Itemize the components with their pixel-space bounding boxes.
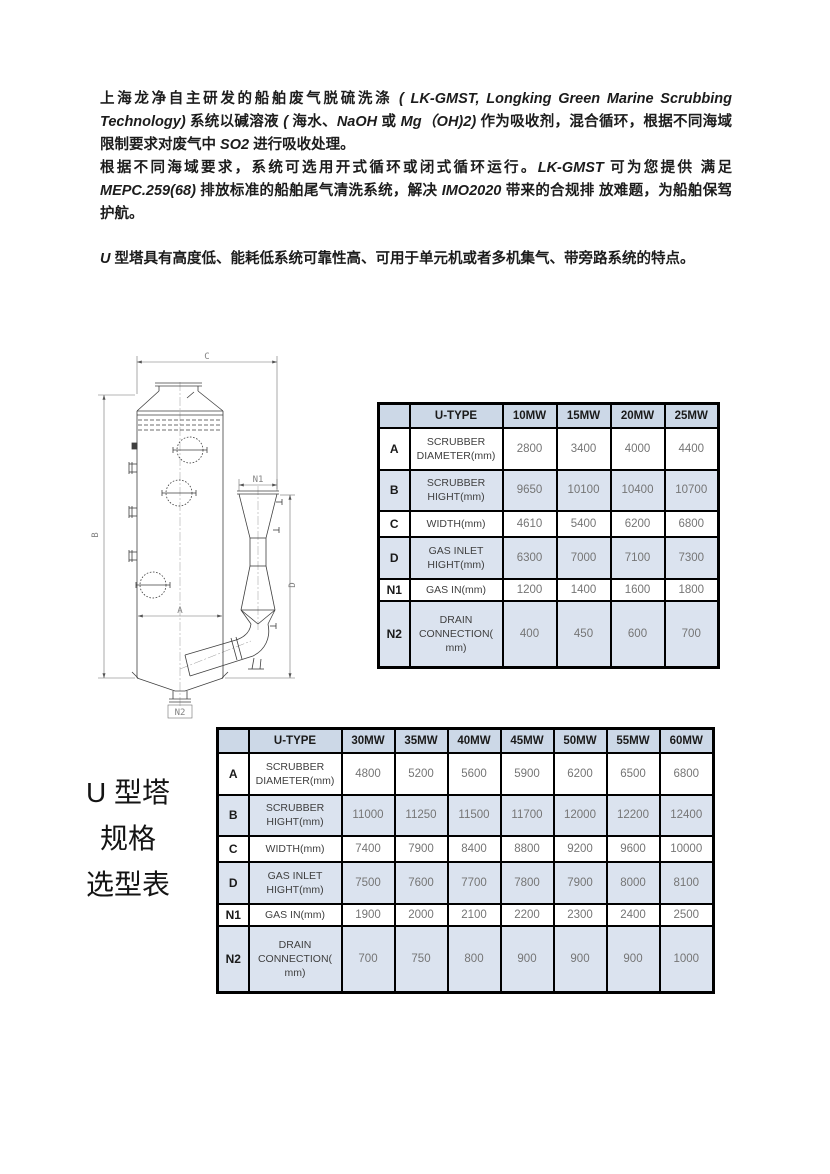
column-header: 60MW (660, 729, 714, 753)
dim-label-d: D (288, 582, 298, 587)
spec-value: 2200 (501, 904, 554, 926)
row-label: N2 (218, 926, 249, 993)
spec-value: 11000 (342, 795, 395, 836)
row-label: C (218, 836, 249, 862)
spec-value: 2400 (607, 904, 660, 926)
spec-value: 7500 (342, 862, 395, 904)
spec-value: 7700 (448, 862, 501, 904)
spec-value: 2100 (448, 904, 501, 926)
spec-value: 9600 (607, 836, 660, 862)
intro-text-block: 上海龙净自主研发的船舶废气脱硫洗涤 ( LK-GMST, Longking Gr… (100, 88, 732, 271)
text-run: 海水、 (292, 114, 336, 130)
text-run-italic: LK-GMST (538, 160, 610, 176)
spec-value: 4800 (342, 753, 395, 795)
column-header: 40MW (448, 729, 501, 753)
text-run: 根据不同海域要求，系统可选用开式循环或闭式循环运行。 (100, 160, 538, 176)
column-header: U-TYPE (410, 404, 503, 428)
dim-label-c: C (204, 352, 209, 362)
dimension-lines (98, 356, 295, 678)
spec-value: 5900 (501, 753, 554, 795)
spec-value: 7900 (554, 862, 607, 904)
spec-table-10-25mw: U-TYPE10MW15MW20MW25MWASCRUBBER DIAMETER… (377, 402, 720, 669)
spec-value: 1000 (660, 926, 714, 993)
spec-value: 11250 (395, 795, 448, 836)
spec-value: 8800 (501, 836, 554, 862)
spec-value: 5400 (557, 511, 611, 537)
row-description: DRAIN CONNECTION( mm) (249, 926, 342, 993)
dim-label-n1: N1 (253, 475, 264, 485)
dim-label-n2: N2 (175, 708, 186, 718)
spec-row-c: CWIDTH(mm)74007900840088009200960010000 (218, 836, 714, 862)
spec-row-c: CWIDTH(mm)4610540062006800 (379, 511, 719, 537)
spec-table-30-60mw: U-TYPE30MW35MW40MW45MW50MW55MW60MWASCRUB… (216, 727, 715, 994)
spec-row-d: DGAS INLET HIGHT(mm)6300700071007300 (379, 537, 719, 579)
text-run: 上海龙净自主研发的船舶废气脱硫洗涤 (100, 91, 399, 107)
spec-value: 400 (503, 601, 557, 668)
spec-value: 11700 (501, 795, 554, 836)
text-run-italic: ( (283, 114, 292, 130)
spec-value: 9200 (554, 836, 607, 862)
row-label: D (379, 537, 410, 579)
spec-value: 700 (342, 926, 395, 993)
spec-value: 7900 (395, 836, 448, 862)
document-page: 上海龙净自主研发的船舶废气脱硫洗涤 ( LK-GMST, Longking Gr… (0, 0, 830, 1174)
text-run: 型塔具有高度低、能耗低系统可靠性高、可用于单元机或者多机集气、带旁路系统的特点。 (115, 251, 695, 267)
row-description: GAS INLET HIGHT(mm) (410, 537, 503, 579)
column-header: 50MW (554, 729, 607, 753)
side-title: U 型塔 规格 选型表 (70, 770, 186, 908)
spec-value: 4000 (611, 428, 665, 470)
row-label: N1 (218, 904, 249, 926)
intro-paragraph-1: 上海龙净自主研发的船舶废气脱硫洗涤 ( LK-GMST, Longking Gr… (100, 88, 732, 157)
spec-value: 5600 (448, 753, 501, 795)
dim-label-b: B (91, 532, 101, 537)
spec-row-b: BSCRUBBER HIGHT(mm)110001125011500117001… (218, 795, 714, 836)
spec-value: 5200 (395, 753, 448, 795)
text-run-italic: IMO2020 (442, 183, 506, 199)
row-label: A (379, 428, 410, 470)
spec-value: 7000 (557, 537, 611, 579)
spec-value: 7400 (342, 836, 395, 862)
row-description: SCRUBBER HIGHT(mm) (249, 795, 342, 836)
spec-value: 7800 (501, 862, 554, 904)
u-type-scrubber-drawing: C B N1 D A (85, 338, 325, 720)
table-header-row: U-TYPE30MW35MW40MW45MW50MW55MW60MW (218, 729, 714, 753)
spec-value: 7600 (395, 862, 448, 904)
text-run: 或 (381, 114, 400, 130)
spec-value: 1200 (503, 579, 557, 601)
spec-value: 12000 (554, 795, 607, 836)
spec-value: 1400 (557, 579, 611, 601)
spec-value: 2300 (554, 904, 607, 926)
column-header: 45MW (501, 729, 554, 753)
spec-value: 1900 (342, 904, 395, 926)
spec-value: 6200 (554, 753, 607, 795)
spec-value: 6800 (660, 753, 714, 795)
gas-inlet-assembly (185, 491, 282, 676)
spec-value: 600 (611, 601, 665, 668)
text-run-italic: NaOH (337, 114, 382, 130)
spec-value: 750 (395, 926, 448, 993)
spec-value: 6800 (665, 511, 719, 537)
spec-value: 4400 (665, 428, 719, 470)
spec-value: 9650 (503, 470, 557, 511)
spec-value: 900 (554, 926, 607, 993)
row-label: B (218, 795, 249, 836)
spec-value: 700 (665, 601, 719, 668)
spec-row-n2: N2DRAIN CONNECTION( mm)400450600700 (379, 601, 719, 668)
spec-value: 1600 (611, 579, 665, 601)
spec-value: 12200 (607, 795, 660, 836)
spec-row-b: BSCRUBBER HIGHT(mm)9650101001040010700 (379, 470, 719, 511)
spec-value: 3400 (557, 428, 611, 470)
spec-value: 6200 (611, 511, 665, 537)
dim-label-a: A (177, 606, 183, 616)
spec-value: 1800 (665, 579, 719, 601)
column-header: 25MW (665, 404, 719, 428)
spec-value: 6300 (503, 537, 557, 579)
spec-value: 800 (448, 926, 501, 993)
spec-value: 6500 (607, 753, 660, 795)
row-description: DRAIN CONNECTION( mm) (410, 601, 503, 668)
spec-value: 7300 (665, 537, 719, 579)
text-run-italic: MEPC.259(68) (100, 183, 200, 199)
column-header: 20MW (611, 404, 665, 428)
spec-value: 7100 (611, 537, 665, 579)
row-description: GAS IN(mm) (410, 579, 503, 601)
table-header-row: U-TYPE10MW15MW20MW25MW (379, 404, 719, 428)
column-header: 15MW (557, 404, 611, 428)
spec-value: 12400 (660, 795, 714, 836)
column-header: U-TYPE (249, 729, 342, 753)
centerlines (180, 382, 258, 706)
text-run: 可为您提供 满足 (610, 160, 732, 176)
spec-value: 8000 (607, 862, 660, 904)
text-run-italic: Mg（OH)2) (401, 114, 481, 130)
row-description: SCRUBBER DIAMETER(mm) (249, 753, 342, 795)
text-run: 排放标准的船舶尾气清洗系统，解决 (200, 183, 441, 199)
spec-row-n1: N1GAS IN(mm)1200140016001800 (379, 579, 719, 601)
row-description: WIDTH(mm) (249, 836, 342, 862)
row-label: N2 (379, 601, 410, 668)
corner-cell (379, 404, 410, 428)
column-header: 35MW (395, 729, 448, 753)
row-label: B (379, 470, 410, 511)
spec-value: 8400 (448, 836, 501, 862)
column-header: 30MW (342, 729, 395, 753)
side-nozzles (129, 443, 137, 562)
manholes (136, 437, 207, 598)
spec-value: 10100 (557, 470, 611, 511)
spec-value: 2800 (503, 428, 557, 470)
spec-row-d: DGAS INLET HIGHT(mm)75007600770078007900… (218, 862, 714, 904)
spec-row-a: ASCRUBBER DIAMETER(mm)2800340040004400 (379, 428, 719, 470)
side-title-line-3: 选型表 (70, 862, 186, 908)
side-title-line-1: U 型塔 (70, 770, 186, 816)
spec-value: 10700 (665, 470, 719, 511)
column-header: 10MW (503, 404, 557, 428)
spec-value: 4610 (503, 511, 557, 537)
row-description: WIDTH(mm) (410, 511, 503, 537)
text-run: 进行吸收处理。 (253, 137, 355, 153)
spec-value: 450 (557, 601, 611, 668)
spec-value: 2500 (660, 904, 714, 926)
spec-value: 10400 (611, 470, 665, 511)
side-title-line-2: 规格 (70, 816, 186, 862)
text-run-italic: U (100, 251, 115, 267)
spec-value: 900 (501, 926, 554, 993)
row-description: GAS INLET HIGHT(mm) (249, 862, 342, 904)
spec-row-n2: N2DRAIN CONNECTION( mm)70075080090090090… (218, 926, 714, 993)
corner-cell (218, 729, 249, 753)
row-description: SCRUBBER HIGHT(mm) (410, 470, 503, 511)
row-label: D (218, 862, 249, 904)
spec-value: 900 (607, 926, 660, 993)
spec-value: 11500 (448, 795, 501, 836)
row-label: C (379, 511, 410, 537)
text-run-italic: SO2 (220, 137, 253, 153)
row-label: N1 (379, 579, 410, 601)
row-label: A (218, 753, 249, 795)
spec-row-n1: N1GAS IN(mm)1900200021002200230024002500 (218, 904, 714, 926)
spec-value: 2000 (395, 904, 448, 926)
text-run: 系统以碱溶液 (190, 114, 283, 130)
intro-paragraph-2: 根据不同海域要求，系统可选用开式循环或闭式循环运行。LK-GMST 可为您提供 … (100, 157, 732, 226)
spec-value: 10000 (660, 836, 714, 862)
column-header: 55MW (607, 729, 660, 753)
row-description: SCRUBBER DIAMETER(mm) (410, 428, 503, 470)
intro-paragraph-3: U 型塔具有高度低、能耗低系统可靠性高、可用于单元机或者多机集气、带旁路系统的特… (100, 248, 732, 271)
spec-value: 8100 (660, 862, 714, 904)
spec-row-a: ASCRUBBER DIAMETER(mm)480052005600590062… (218, 753, 714, 795)
row-description: GAS IN(mm) (249, 904, 342, 926)
